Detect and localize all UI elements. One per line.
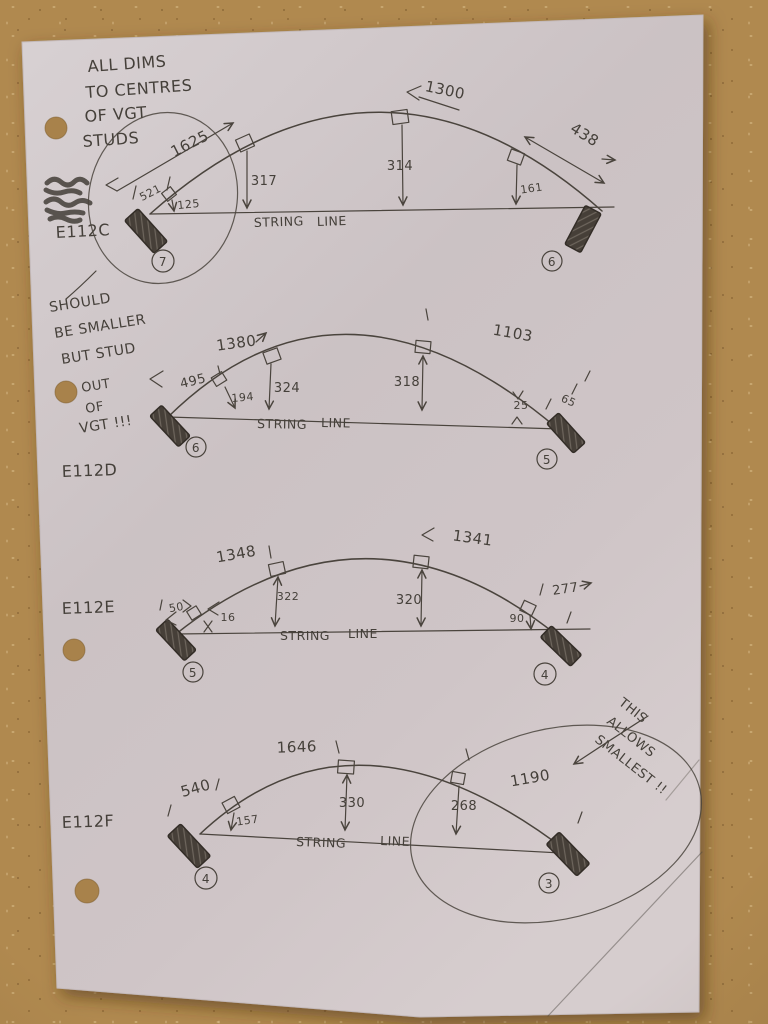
string-line-label: LINE — [321, 415, 351, 431]
dim-value: 194 — [231, 390, 255, 405]
node-number: 3 — [545, 877, 553, 891]
string-line-label: STRING — [280, 628, 330, 643]
dim-value: 1646 — [276, 737, 317, 756]
dim-value: 314 — [387, 159, 413, 174]
punch-hole — [45, 117, 67, 139]
corkboard-photo: ALL DIMS TO CENTRES OF VGT STUDS E112C 7… — [0, 0, 768, 1024]
string-line-label: STRING — [254, 213, 304, 230]
node-number: 5 — [189, 666, 197, 680]
sketch-canvas: ALL DIMS TO CENTRES OF VGT STUDS E112C 7… — [0, 0, 768, 1024]
dim-value: 317 — [251, 174, 277, 189]
node-number: 4 — [202, 872, 210, 886]
dim-value: 25 — [514, 399, 529, 412]
dim-value: 90 — [510, 612, 525, 625]
dim-value: 330 — [339, 796, 365, 811]
string-line-label: STRING — [257, 416, 307, 432]
dim-value: 16 — [221, 611, 236, 624]
diagram-label: E112E — [61, 597, 115, 618]
dim-value: 268 — [451, 799, 477, 814]
node-number: 6 — [192, 441, 200, 455]
string-line-label: LINE — [380, 833, 410, 849]
dim-value: 322 — [277, 590, 300, 603]
paper-sheet — [22, 15, 703, 1017]
dim-value: 320 — [396, 593, 422, 608]
string-line-label: LINE — [317, 213, 347, 229]
dim-value: 324 — [274, 381, 300, 396]
string-line-label: STRING — [296, 834, 346, 851]
side-note-line: OF — [84, 399, 105, 417]
diagram-label: E112F — [61, 811, 114, 832]
dim-value: 318 — [394, 375, 420, 390]
punch-hole — [55, 381, 77, 403]
node-number: 6 — [548, 255, 556, 269]
node-number: 5 — [543, 453, 551, 467]
dim-value: 50 — [168, 600, 185, 615]
node-number: 7 — [159, 255, 167, 269]
punch-hole — [75, 879, 99, 903]
punch-hole — [63, 639, 85, 661]
diagram-label: E112D — [61, 460, 117, 481]
string-line-label: LINE — [348, 626, 378, 641]
dim-value: 125 — [177, 197, 201, 212]
diagram-label: E112C — [55, 220, 110, 242]
node-number: 4 — [541, 668, 549, 682]
